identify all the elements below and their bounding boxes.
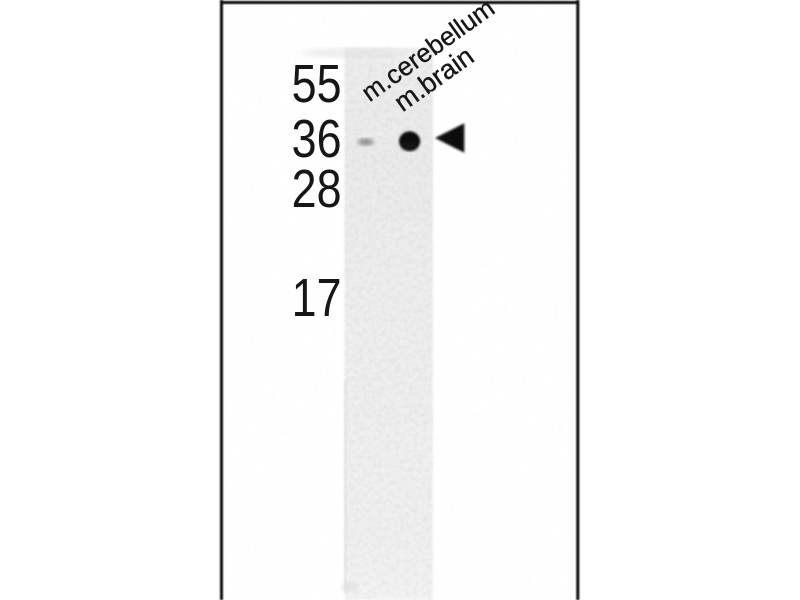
svg-text:17: 17 — [292, 267, 342, 328]
svg-text:55: 55 — [292, 53, 342, 114]
svg-text:28: 28 — [292, 158, 342, 219]
